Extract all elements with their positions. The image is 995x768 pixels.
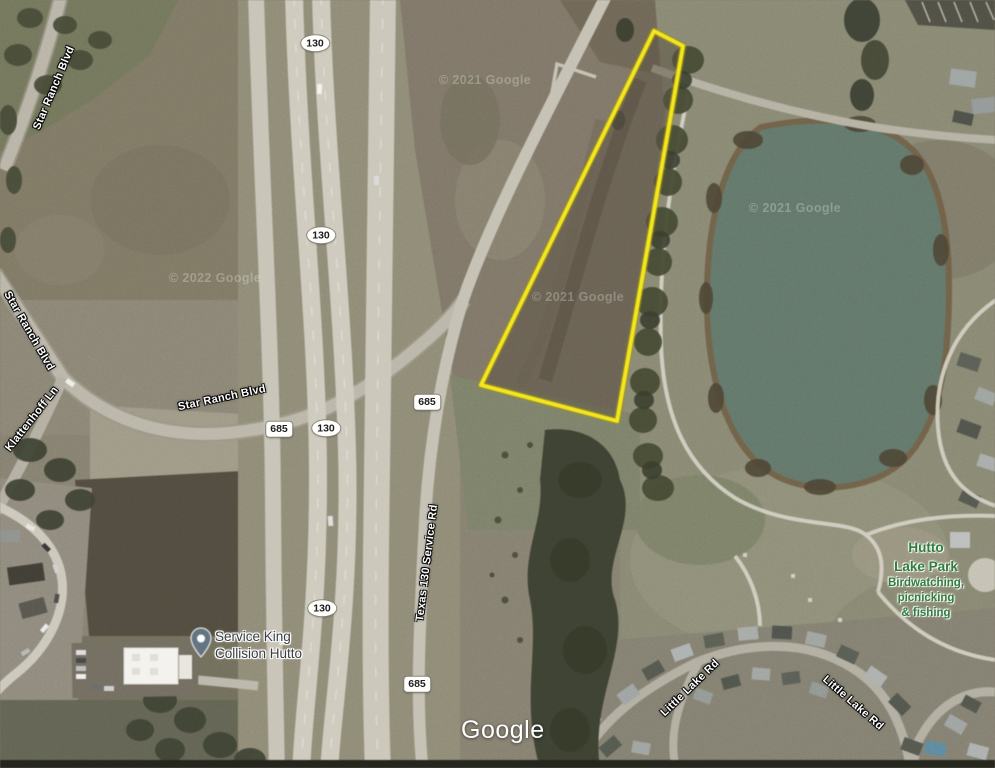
map-canvas[interactable]: Star Ranch Blvd Star Ranch Blvd Klattenh… <box>0 0 995 768</box>
photo-bottom-edge <box>0 760 995 768</box>
grain-texture <box>0 0 995 768</box>
satellite-imagery <box>0 0 995 768</box>
